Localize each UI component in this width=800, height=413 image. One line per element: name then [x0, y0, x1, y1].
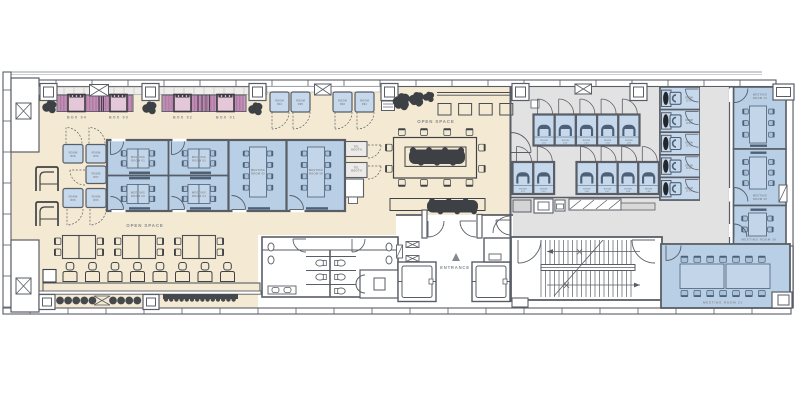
- svg-text:ROOM 20: ROOM 20: [753, 197, 767, 201]
- svg-text:BOOTH: BOOTH: [351, 169, 362, 173]
- svg-text:ENTRANCE: ENTRANCE: [440, 265, 470, 270]
- svg-text:1F21: 1F21: [686, 191, 692, 193]
- svg-text:R07: R07: [93, 175, 99, 179]
- svg-text:R05: R05: [298, 102, 304, 106]
- svg-text:MEETING ROOM 21: MEETING ROOM 21: [703, 301, 743, 305]
- svg-text:L06: L06: [585, 191, 590, 193]
- svg-text:ROOM: ROOM: [92, 195, 101, 199]
- svg-text:ROOM: ROOM: [338, 99, 347, 103]
- svg-text:OPEN SPACE: OPEN SPACE: [126, 223, 163, 228]
- svg-text:BOOTH: BOOTH: [351, 148, 362, 152]
- svg-text:L07: L07: [605, 191, 610, 193]
- svg-text:L01: L01: [542, 143, 547, 145]
- svg-text:R01: R01: [362, 102, 368, 106]
- svg-text:ROOM: ROOM: [360, 99, 369, 103]
- svg-text:L02: L02: [563, 143, 568, 145]
- svg-text:1F25: 1F25: [686, 100, 692, 102]
- svg-text:R02: R02: [340, 102, 346, 106]
- svg-text:ROOM: ROOM: [275, 99, 284, 103]
- svg-text:ROOM: ROOM: [69, 150, 78, 154]
- svg-text:R05: R05: [93, 198, 99, 202]
- svg-text:R04: R04: [277, 102, 283, 106]
- svg-text:ROOM 02: ROOM 02: [192, 158, 206, 162]
- svg-text:ROOM: ROOM: [92, 150, 101, 154]
- svg-text:1F22: 1F22: [686, 168, 692, 170]
- svg-text:ROOM: ROOM: [296, 99, 305, 103]
- svg-text:ROOM 03: ROOM 03: [131, 194, 145, 198]
- svg-text:ROOM: ROOM: [69, 195, 78, 199]
- svg-text:L08: L08: [626, 191, 631, 193]
- svg-text:ROOM 19: ROOM 19: [753, 96, 767, 100]
- svg-text:BOX 03: BOX 03: [109, 116, 129, 120]
- svg-text:BOX 04: BOX 04: [67, 116, 87, 120]
- svg-text:BOX 01: BOX 01: [216, 116, 236, 120]
- svg-text:MEETING ROOM 26: MEETING ROOM 26: [741, 238, 776, 242]
- svg-text:ROOM 04: ROOM 04: [192, 194, 206, 198]
- svg-text:R08: R08: [70, 154, 76, 158]
- svg-text:R06: R06: [70, 198, 76, 202]
- svg-text:L04: L04: [606, 142, 611, 145]
- svg-text:L11: L11: [521, 191, 526, 193]
- svg-text:OPEN SPACE: OPEN SPACE: [417, 119, 454, 124]
- svg-text:L09: L09: [647, 191, 652, 193]
- svg-text:ROOM: ROOM: [92, 171, 101, 175]
- svg-text:L03: L03: [584, 143, 589, 145]
- svg-text:1F23: 1F23: [686, 146, 692, 148]
- svg-text:L05: L05: [627, 143, 632, 145]
- svg-text:ROOM 01: ROOM 01: [131, 158, 145, 162]
- svg-text:R09: R09: [93, 154, 99, 158]
- svg-text:ROOM 06: ROOM 06: [309, 171, 323, 175]
- svg-text:ROOM 05: ROOM 05: [251, 171, 265, 175]
- svg-text:L12: L12: [542, 191, 547, 193]
- svg-text:BOX 02: BOX 02: [173, 116, 193, 120]
